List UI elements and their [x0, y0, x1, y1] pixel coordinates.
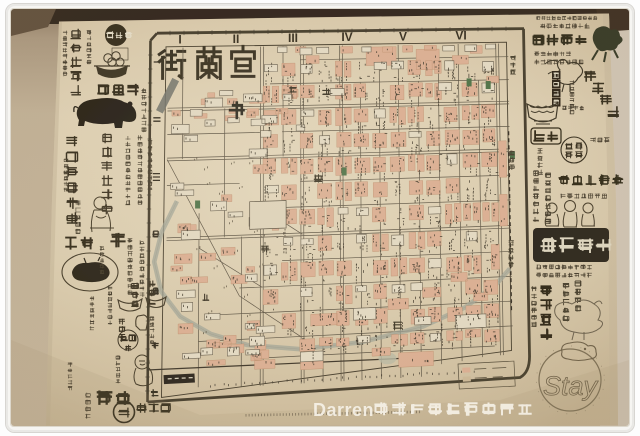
svg-text:Darren: Darren [313, 400, 374, 420]
